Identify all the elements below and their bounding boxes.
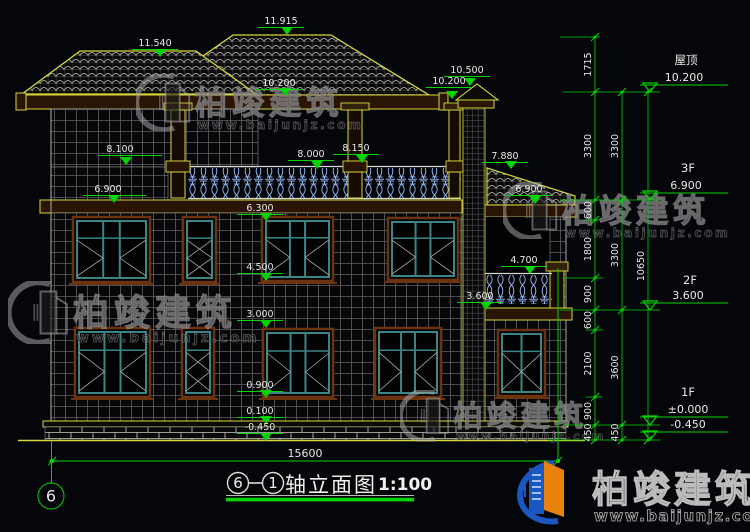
- balustrade-3f: [188, 168, 461, 198]
- elevation-value: 6.300: [246, 203, 273, 214]
- elevation-value: 8.100: [106, 144, 133, 155]
- dimension-value: 1715: [583, 52, 594, 76]
- title-axis-to: 1: [268, 474, 278, 492]
- elevation-value: -0.450: [245, 422, 276, 433]
- dimension-value: 3600: [610, 355, 621, 379]
- floor-elevation-value: 6.900: [670, 179, 702, 192]
- title-underline-green: [226, 498, 414, 502]
- dimension-value: 600: [583, 201, 594, 219]
- dimension-value: 900: [583, 285, 594, 303]
- elevation-value: 4.500: [246, 262, 273, 273]
- drawing-scale: 1:100: [378, 475, 432, 495]
- floor-name: 3F: [681, 161, 695, 175]
- drawing-title: 轴立面图: [285, 473, 377, 497]
- elevation-value: 3.000: [246, 309, 273, 320]
- fascia-end-left: [16, 93, 26, 110]
- axis-number: 6: [46, 487, 56, 506]
- elevation-value: 0.100: [246, 406, 273, 417]
- window: [371, 328, 445, 399]
- floor-elevation-value: ±0.000: [668, 403, 709, 416]
- logo-brand-text: 柏竣建筑: [592, 468, 750, 511]
- elevation-value: 8.000: [297, 149, 324, 160]
- watermark-brand-text: 柏竣建筑: [73, 293, 237, 334]
- cad-canvas: 柏竣建筑www.baijunjz.com柏竣建筑www.baijunjz.com…: [0, 0, 750, 532]
- elevation-drawing: 柏竣建筑www.baijunjz.com柏竣建筑www.baijunjz.com…: [0, 0, 750, 532]
- elevation-value: 11.540: [138, 38, 171, 49]
- elevation-value: 3.600: [466, 291, 493, 302]
- dimension-value: 3300: [610, 134, 621, 158]
- elevation-value: 6.900: [94, 184, 121, 195]
- floor-elevation-value: 3.600: [672, 289, 704, 302]
- elevation-value: 10.500: [450, 65, 483, 76]
- floor-elevation-value: -0.450: [670, 418, 705, 431]
- watermark-url-text: www.baijunjz.com: [198, 118, 364, 132]
- dimension-value: 3300: [610, 243, 621, 267]
- watermark-brand-text: 柏竣建筑: [453, 399, 587, 433]
- dimension-value: 3300: [583, 134, 594, 158]
- elevation-value: 0.900: [246, 380, 273, 391]
- floor-elevation-value: 10.200: [665, 71, 704, 84]
- window: [179, 217, 220, 284]
- balcony-balustrade: [484, 275, 552, 304]
- watermark-url-text: www.baijunjz.com: [76, 330, 259, 346]
- elevation-value: 6.900: [515, 184, 542, 195]
- logo-url-text: www.baijunjz.com: [594, 507, 750, 525]
- title-axis-from: 6: [233, 474, 243, 492]
- elevation-value: 11.915: [264, 16, 297, 27]
- dimension-value: 450: [583, 423, 594, 441]
- dimension-value: 2100: [583, 351, 594, 375]
- dimension-value: 10650: [636, 251, 647, 281]
- floor-name: 1F: [681, 385, 695, 399]
- elevation-value: 8.150: [342, 143, 369, 154]
- dimension-value: 1800: [583, 237, 594, 261]
- window: [69, 217, 154, 284]
- window: [384, 218, 462, 282]
- dimension-value: 900: [583, 402, 594, 420]
- elevation-value: 7.880: [491, 151, 518, 162]
- floor-name: 屋顶: [675, 53, 698, 67]
- dimension-value: 450: [610, 423, 621, 441]
- elevation-value: 10.200: [432, 76, 465, 87]
- elevation-value: 10.200: [262, 78, 295, 89]
- elevation-value: 4.700: [510, 255, 537, 266]
- floor-name: 2F: [683, 273, 697, 287]
- overall-width-value: 15600: [288, 447, 323, 460]
- window: [494, 330, 549, 398]
- dimension-value: 600: [583, 311, 594, 329]
